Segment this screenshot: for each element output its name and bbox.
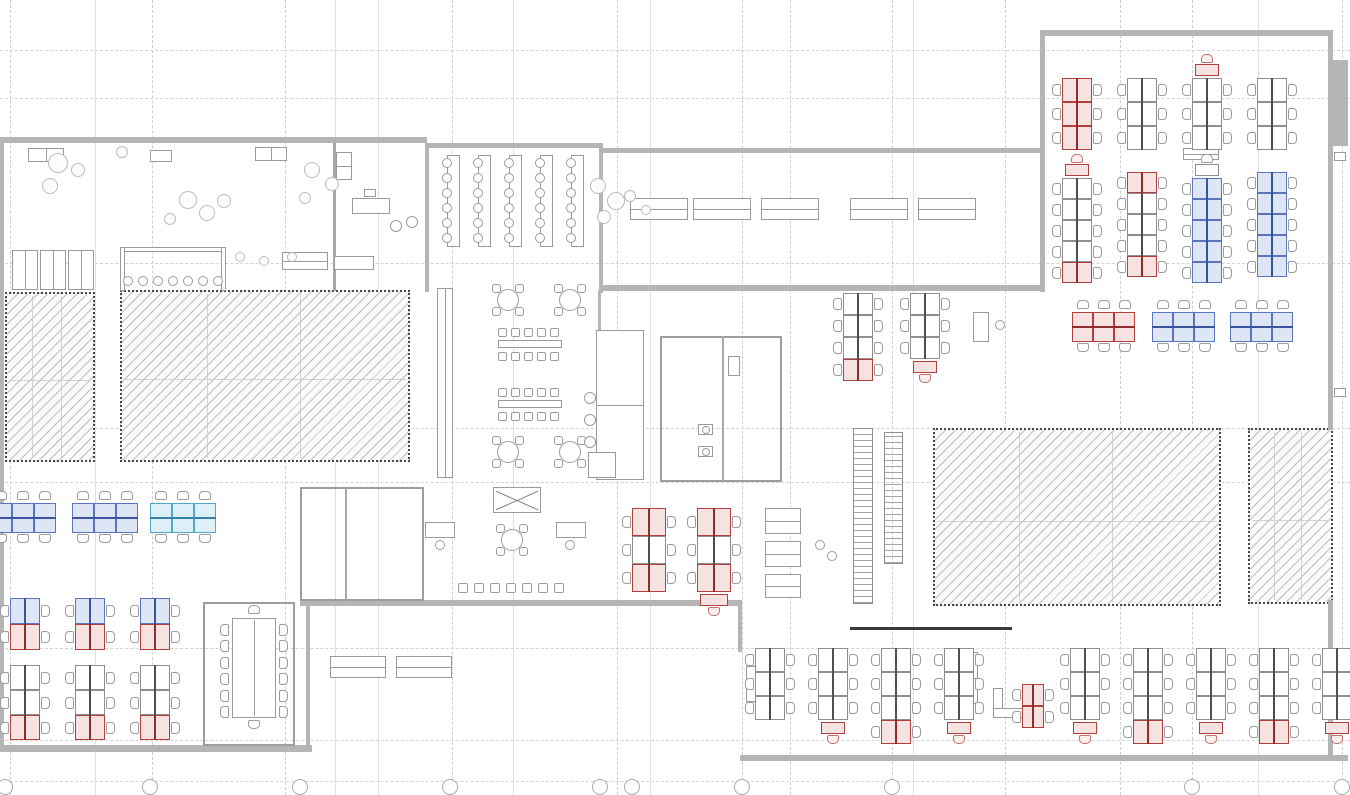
- chair: [1178, 300, 1190, 309]
- chair: [1060, 678, 1069, 690]
- chair: [1247, 132, 1256, 144]
- chair: [577, 284, 586, 293]
- chair: [177, 491, 189, 500]
- corridor-stool: [458, 583, 468, 593]
- canteen-chair: [550, 328, 559, 337]
- desk-spine: [1206, 262, 1208, 283]
- desk-spine: [1084, 696, 1086, 720]
- chair: [171, 722, 180, 734]
- stair-flight: [853, 428, 873, 604]
- chair: [1247, 108, 1256, 120]
- chair: [1201, 154, 1213, 163]
- chair: [1123, 702, 1132, 714]
- chair: [515, 436, 524, 445]
- chair: [519, 524, 528, 533]
- end-desk: [821, 722, 845, 734]
- lounge-furniture: [71, 163, 85, 177]
- furniture-divider: [337, 166, 351, 167]
- lounge-furniture: [641, 205, 651, 215]
- chair: [687, 544, 696, 556]
- training-chair: [473, 158, 483, 168]
- chair: [941, 320, 950, 332]
- chair: [871, 678, 880, 690]
- chair: [41, 631, 50, 643]
- desk-spine: [1206, 126, 1208, 150]
- wall-segment: [600, 285, 1042, 291]
- core-partition-line: [937, 521, 1217, 522]
- chair: [65, 672, 74, 684]
- lounge-furniture: [607, 192, 625, 210]
- chair: [900, 298, 909, 310]
- training-chair: [473, 233, 483, 243]
- chair: [1331, 735, 1343, 744]
- canteen-chair: [498, 352, 507, 361]
- wall-segment: [306, 600, 310, 749]
- grid-line-vertical: [913, 0, 914, 795]
- chair: [1157, 343, 1169, 352]
- chair: [0, 672, 9, 684]
- lounge-furniture: [42, 178, 58, 194]
- chair: [833, 364, 842, 376]
- chair: [833, 342, 842, 354]
- desk-spine: [12, 517, 34, 519]
- training-chair: [504, 188, 514, 198]
- wall-segment: [425, 143, 429, 292]
- desk-spine: [24, 598, 26, 624]
- lounge-furniture: [217, 194, 231, 208]
- end-desk: [700, 594, 728, 606]
- desk-spine: [1271, 214, 1273, 235]
- wall-segment: [1040, 30, 1332, 36]
- furniture-plain: [1334, 152, 1346, 161]
- chair: [199, 534, 211, 543]
- chair: [492, 307, 501, 316]
- grid-line-horizontal: [0, 50, 1350, 51]
- chair: [1247, 240, 1256, 252]
- canteen-chair: [511, 328, 520, 337]
- chair: [1117, 177, 1126, 189]
- desk-spine: [154, 624, 156, 650]
- canteen-chair: [511, 352, 520, 361]
- chair: [171, 605, 180, 617]
- desk-spine: [1336, 648, 1338, 672]
- desk-spine: [1273, 720, 1275, 744]
- training-chair: [473, 203, 483, 213]
- conference-chair: [279, 706, 288, 718]
- desk-spine: [1336, 672, 1338, 696]
- chair: [1101, 678, 1110, 690]
- desk-spine: [1272, 326, 1293, 328]
- furniture-plain: [973, 312, 989, 342]
- chair: [833, 298, 842, 310]
- desk-spine: [194, 517, 216, 519]
- desk-spine: [89, 624, 91, 650]
- chair: [912, 678, 921, 690]
- training-chair: [442, 233, 452, 243]
- lounge-furniture: [199, 205, 215, 221]
- core-partition-line: [32, 296, 33, 458]
- desk-spine: [924, 293, 926, 315]
- chair: [1182, 183, 1191, 195]
- corridor-stool: [490, 583, 500, 593]
- training-chair: [535, 173, 545, 183]
- furniture-plain: [352, 198, 390, 214]
- desk-spine: [1084, 672, 1086, 696]
- chair: [171, 697, 180, 709]
- chair: [1249, 726, 1258, 738]
- chair: [554, 436, 563, 445]
- furniture-plain: [728, 356, 740, 376]
- chair: [1119, 343, 1131, 352]
- desk-spine: [1141, 126, 1143, 150]
- chair: [1052, 108, 1061, 120]
- desk-spine: [1076, 199, 1078, 220]
- wall-segment: [425, 143, 603, 148]
- furniture-plain: [334, 256, 374, 270]
- core-partition-line: [61, 296, 62, 458]
- desk-spine: [713, 564, 715, 592]
- canteen-chair: [498, 388, 507, 397]
- desk-spine: [895, 672, 897, 696]
- chair: [106, 672, 115, 684]
- chair: [1312, 654, 1321, 666]
- end-desk: [1065, 164, 1089, 176]
- chair: [130, 605, 139, 617]
- chair-round: [565, 540, 575, 550]
- furniture-divider: [766, 554, 800, 555]
- furniture-plain: [364, 189, 376, 197]
- conference-chair: [220, 690, 229, 702]
- chair: [1288, 198, 1297, 210]
- room-outline: [300, 487, 424, 601]
- desk-spine: [1141, 172, 1143, 193]
- lounge-furniture: [304, 162, 320, 178]
- chair: [1178, 343, 1190, 352]
- desk-spine: [1032, 684, 1034, 706]
- conference-chair: [279, 624, 288, 636]
- desk-spine: [1141, 256, 1143, 277]
- training-chair: [535, 158, 545, 168]
- chair: [1093, 132, 1102, 144]
- desk-spine: [24, 665, 26, 690]
- lounge-furniture: [179, 191, 197, 209]
- core-partition-line: [1112, 432, 1113, 602]
- desk-spine: [1173, 326, 1194, 328]
- chair: [1249, 702, 1258, 714]
- chair: [849, 702, 858, 714]
- chair: [1256, 343, 1268, 352]
- grid-bubble: [142, 779, 158, 795]
- desk-spine: [924, 315, 926, 337]
- training-chair: [535, 233, 545, 243]
- desk-spine: [769, 672, 771, 696]
- chair: [622, 572, 631, 584]
- canteen-chair: [524, 328, 533, 337]
- chair: [1312, 678, 1321, 690]
- floor-plan-canvas: [0, 0, 1350, 795]
- chair: [155, 491, 167, 500]
- desk-spine: [769, 648, 771, 672]
- wall-segment: [1330, 60, 1348, 146]
- furniture-divider: [271, 148, 272, 160]
- chair: [515, 284, 524, 293]
- chair: [1182, 225, 1191, 237]
- desk-spine: [1206, 220, 1208, 241]
- furniture-divider: [631, 209, 687, 210]
- lounge-furniture: [624, 190, 636, 202]
- end-desk: [913, 361, 937, 373]
- chair: [1182, 84, 1191, 96]
- chair: [1182, 204, 1191, 216]
- chair: [1158, 132, 1167, 144]
- chair: [1249, 678, 1258, 690]
- chair: [41, 605, 50, 617]
- chair: [1158, 108, 1167, 120]
- chair: [941, 342, 950, 354]
- chair: [492, 284, 501, 293]
- counter-stool: [213, 276, 223, 286]
- training-chair: [504, 203, 514, 213]
- training-chair: [566, 158, 576, 168]
- counter-stool: [123, 276, 133, 286]
- chair: [1093, 84, 1102, 96]
- chair: [849, 654, 858, 666]
- canteen-chair: [524, 412, 533, 421]
- desk-spine: [1152, 326, 1173, 328]
- furniture-divider: [766, 586, 800, 587]
- chair: [1117, 240, 1126, 252]
- furniture-divider: [53, 251, 54, 289]
- chair: [554, 284, 563, 293]
- chair: [41, 697, 50, 709]
- chair: [519, 547, 528, 556]
- chair: [687, 516, 696, 528]
- chair: [1098, 300, 1110, 309]
- furniture-plain: [150, 150, 172, 162]
- chair: [1249, 654, 1258, 666]
- training-chair: [442, 203, 452, 213]
- chair: [1223, 84, 1232, 96]
- desk-spine: [1273, 672, 1275, 696]
- chair: [1247, 84, 1256, 96]
- chair: [1186, 702, 1195, 714]
- lounge-furniture: [116, 146, 128, 158]
- chair: [667, 572, 676, 584]
- chair: [39, 534, 51, 543]
- furniture-divider: [397, 667, 451, 668]
- chair: [65, 697, 74, 709]
- core-partition-line: [300, 294, 301, 458]
- furniture-divider: [1184, 154, 1218, 155]
- end-desk: [1325, 722, 1349, 734]
- desk-spine: [24, 624, 26, 650]
- training-chair: [535, 203, 545, 213]
- chair: [1012, 711, 1021, 723]
- chair: [1164, 678, 1173, 690]
- desk-spine: [150, 517, 172, 519]
- wall-segment: [740, 755, 1348, 761]
- training-chair: [504, 233, 514, 243]
- chair: [1093, 225, 1102, 237]
- chair: [687, 572, 696, 584]
- chair: [732, 516, 741, 528]
- chair: [808, 678, 817, 690]
- desk-spine: [1114, 326, 1135, 328]
- chair: [1098, 343, 1110, 352]
- chair: [786, 654, 795, 666]
- chair: [1164, 702, 1173, 714]
- chair: [1247, 261, 1256, 273]
- canteen-table: [498, 340, 562, 348]
- chair-round: [584, 392, 596, 404]
- conference-table-divider: [254, 620, 255, 716]
- furniture-plain: [556, 522, 586, 538]
- canteen-chair: [537, 352, 546, 361]
- desk-spine: [1271, 102, 1273, 126]
- chair: [871, 726, 880, 738]
- chair: [1256, 300, 1268, 309]
- desk-spine: [857, 337, 859, 359]
- lounge-furniture: [597, 210, 611, 224]
- chair: [65, 605, 74, 617]
- desk-spine: [34, 517, 56, 519]
- chair: [1290, 702, 1299, 714]
- chair: [1119, 300, 1131, 309]
- grid-bubble: [624, 779, 640, 795]
- grid-bubble: [0, 779, 13, 795]
- chair: [1290, 654, 1299, 666]
- furniture-plain: [221, 247, 226, 291]
- chair: [1223, 246, 1232, 258]
- desk-spine: [1076, 102, 1078, 126]
- desk-spine: [832, 672, 834, 696]
- canteen-chair: [550, 352, 559, 361]
- chair: [732, 544, 741, 556]
- chair: [871, 702, 880, 714]
- chair: [808, 702, 817, 714]
- chair: [1093, 183, 1102, 195]
- training-chair: [442, 218, 452, 228]
- desk-spine: [1273, 648, 1275, 672]
- desk-spine: [1076, 78, 1078, 102]
- chair: [65, 631, 74, 643]
- chair: [1182, 267, 1191, 279]
- end-desk: [1073, 722, 1097, 734]
- desk-spine: [72, 517, 94, 519]
- chair: [1117, 198, 1126, 210]
- grid-line-vertical: [650, 0, 651, 795]
- chair: [177, 534, 189, 543]
- chair: [833, 320, 842, 332]
- chair: [975, 702, 984, 714]
- chair-round: [702, 426, 710, 434]
- end-desk: [1195, 164, 1219, 176]
- chair-round: [815, 540, 825, 550]
- chair: [1223, 204, 1232, 216]
- desk-spine: [1251, 326, 1272, 328]
- chair: [745, 654, 754, 666]
- desk-spine: [924, 337, 926, 359]
- training-chair: [504, 218, 514, 228]
- conference-chair: [248, 720, 260, 729]
- chair: [1101, 702, 1110, 714]
- desk-spine: [1141, 235, 1143, 256]
- grid-bubble: [292, 779, 308, 795]
- desk-spine: [1147, 696, 1149, 720]
- chair: [1157, 300, 1169, 309]
- chair-round: [702, 448, 710, 456]
- desk-spine: [1206, 241, 1208, 262]
- chair: [99, 491, 111, 500]
- training-chair: [442, 173, 452, 183]
- chair: [1186, 654, 1195, 666]
- desk-spine: [1141, 78, 1143, 102]
- corridor-stool: [522, 583, 532, 593]
- desk-spine: [24, 690, 26, 715]
- chair: [1052, 225, 1061, 237]
- desk-spine: [1093, 326, 1114, 328]
- desk-spine: [1271, 126, 1273, 150]
- chair: [1158, 177, 1167, 189]
- desk-spine: [94, 517, 116, 519]
- chair: [106, 722, 115, 734]
- corridor-stool: [506, 583, 516, 593]
- chair: [1101, 654, 1110, 666]
- chair: [827, 735, 839, 744]
- desk-spine: [832, 696, 834, 720]
- lounge-furniture: [287, 252, 297, 262]
- chair: [130, 631, 139, 643]
- chair: [106, 605, 115, 617]
- chair: [1158, 261, 1167, 273]
- furniture-divider: [597, 405, 643, 406]
- desk-spine: [1147, 672, 1149, 696]
- counter-stool: [153, 276, 163, 286]
- chair: [17, 534, 29, 543]
- chair-round: [390, 220, 402, 232]
- desk-spine: [1147, 720, 1149, 744]
- grid-bubble: [442, 779, 458, 795]
- desk-spine: [895, 648, 897, 672]
- chair-round: [406, 216, 418, 228]
- furniture-divider: [919, 209, 975, 210]
- desk-spine: [958, 648, 960, 672]
- chair: [577, 307, 586, 316]
- conference-chair: [220, 673, 229, 685]
- floor-plan-viewer: [0, 0, 1350, 795]
- chair: [496, 524, 505, 533]
- canteen-chair: [498, 412, 507, 421]
- desk-spine: [1141, 102, 1143, 126]
- training-chair: [442, 158, 452, 168]
- furniture-divider: [851, 209, 907, 210]
- chair: [1247, 219, 1256, 231]
- desk-spine: [1084, 648, 1086, 672]
- conference-chair: [279, 640, 288, 652]
- desk-spine: [958, 672, 960, 696]
- chair: [1182, 108, 1191, 120]
- chair: [871, 654, 880, 666]
- desk-spine: [89, 690, 91, 715]
- end-desk: [1195, 64, 1219, 76]
- chair: [708, 607, 720, 616]
- chair: [41, 672, 50, 684]
- desk-spine: [1141, 214, 1143, 235]
- chair: [1288, 108, 1297, 120]
- chair: [874, 342, 883, 354]
- desk-spine: [1230, 326, 1251, 328]
- chair: [515, 307, 524, 316]
